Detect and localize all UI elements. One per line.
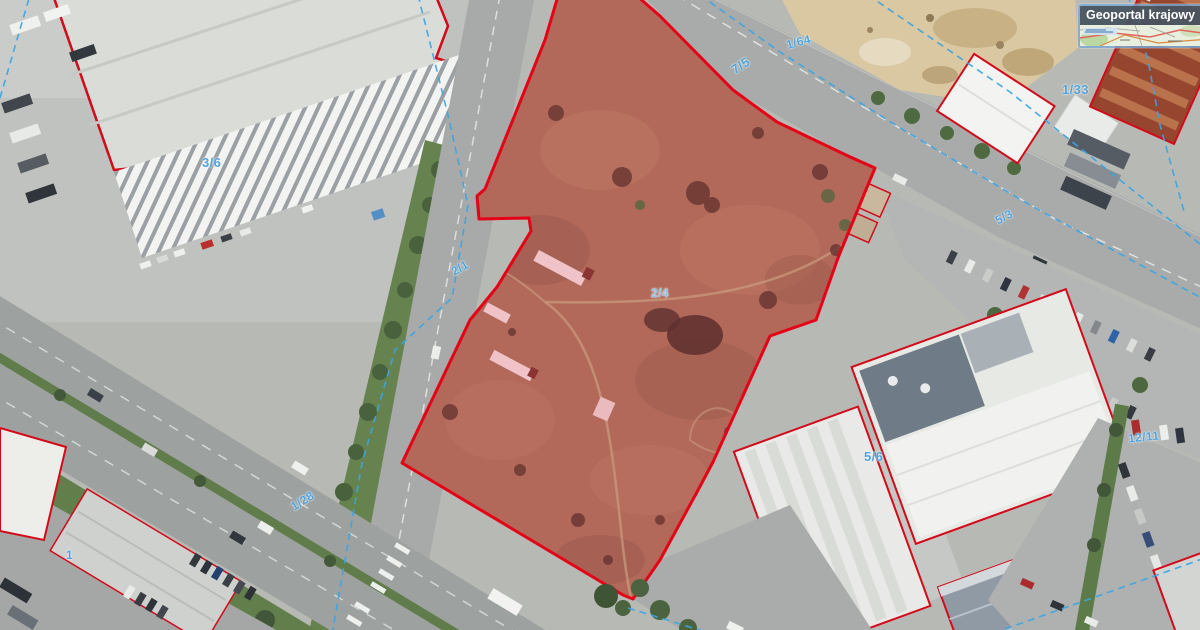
map-viewport[interactable]: 7/5 1/64 1/33 3/6 2/4 5/3 5/6 2/1 1/28 1… — [0, 0, 1200, 630]
parcel-label: 5/6 — [864, 449, 883, 464]
parcel-label: 1 — [66, 548, 73, 562]
badge-map-thumbnail — [1080, 25, 1200, 46]
parcel-label: 1/33 — [1062, 82, 1089, 97]
parcel-label: 3/6 — [202, 155, 221, 170]
mini-map — [1080, 25, 1200, 46]
aerial-imagery — [0, 0, 1200, 630]
parcel-label: 2/4 — [651, 286, 669, 300]
badge-title: Geoportal krajowy — [1080, 6, 1200, 25]
geoportal-badge[interactable]: Geoportal krajowy — [1078, 4, 1200, 48]
